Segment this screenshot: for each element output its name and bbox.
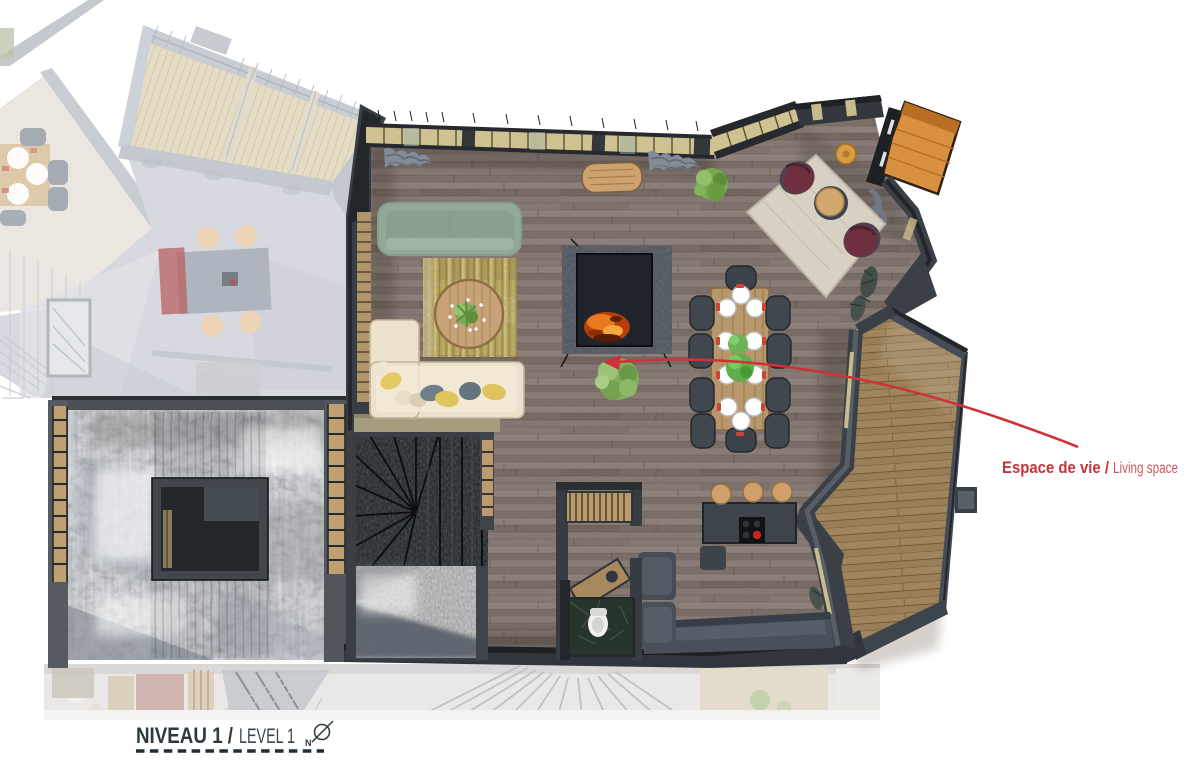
svg-text:Espace de vie /: Espace de vie / (1002, 459, 1109, 477)
svg-text:NIVEAU 1 /: NIVEAU 1 / (136, 723, 233, 748)
svg-text:LEVEL 1: LEVEL 1 (239, 725, 295, 748)
svg-text:N: N (305, 738, 312, 748)
svg-text:Living space: Living space (1113, 460, 1178, 477)
